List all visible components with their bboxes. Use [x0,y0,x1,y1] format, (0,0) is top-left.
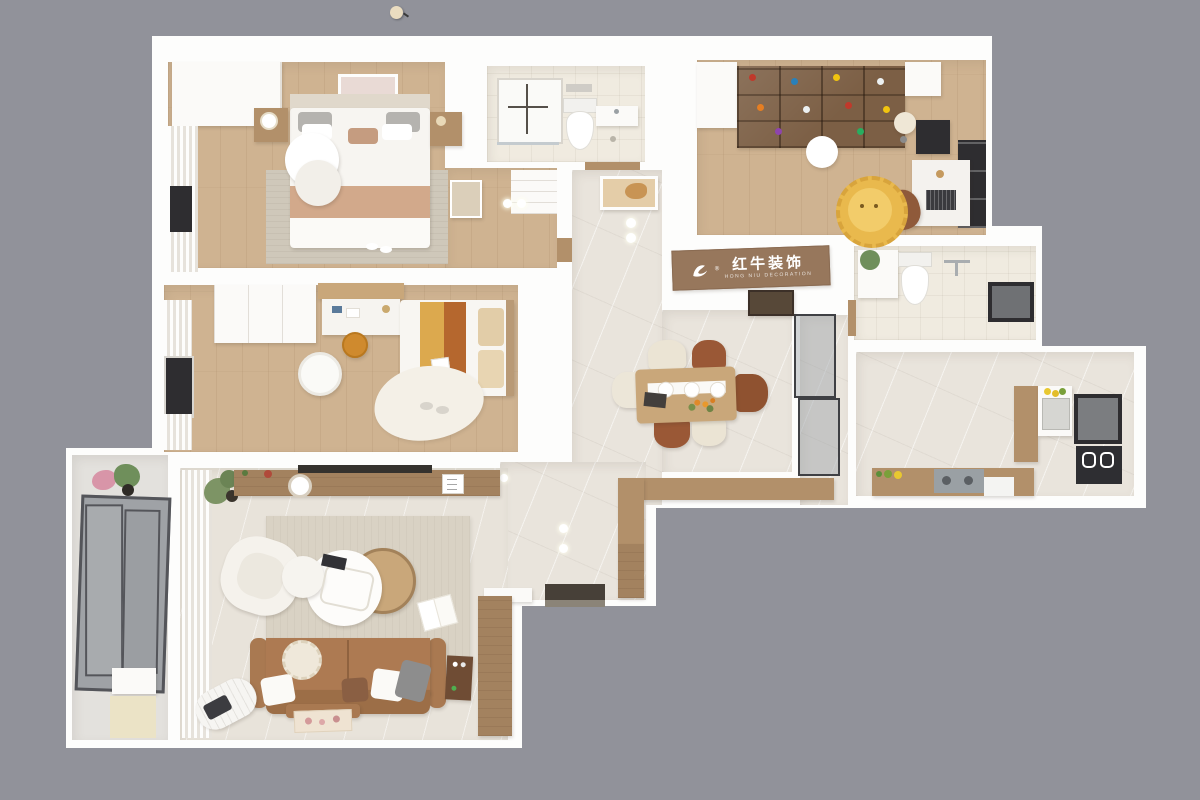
oven-handle [1082,452,1096,468]
bed-headboard [506,300,514,396]
ceiling-light [517,199,526,208]
poster-motif [333,715,340,722]
ceiling-light [626,218,636,228]
lion-eye [874,204,878,208]
shower-cross-v [526,84,528,134]
entry-door-mat [545,584,605,600]
brand-name-en: HONG NIU DECORATION [725,272,813,280]
bathroom-right-threshold [848,300,856,336]
clock-decor [288,474,312,498]
ceiling-light [500,474,508,482]
slipper [420,402,433,410]
side-table-small [295,160,341,206]
desk-notebook [332,306,342,313]
poster-motif [319,719,325,725]
slipper-left [366,243,378,250]
orange-stool [342,332,368,358]
toy [857,128,864,135]
toy [877,78,884,85]
sofa-arm-right [428,638,446,708]
bathroom-top-threshold [585,162,640,170]
armchair-rust-right [734,374,768,412]
tv-niche [170,186,192,232]
slipper-right [380,246,392,253]
toy [775,128,782,135]
nightstand-right [430,112,462,146]
cabinet-left [697,62,737,128]
flower [710,398,715,403]
bedroom2-desk [322,299,400,335]
toy [749,74,756,81]
lion-eye [860,204,864,208]
rolled-mat-panel [202,694,232,720]
bedroom2-curtain-top [164,300,192,356]
toy [883,106,890,113]
poster-motif [305,717,312,724]
red-decor [264,470,272,478]
floor-drain [610,136,616,142]
foot-fold [290,218,430,248]
lemon [1052,390,1059,397]
fruit [876,471,882,477]
brand-sign: ® 红牛装饰 HONG NIU DECORATION [671,245,830,290]
balcony-appliance [112,668,156,694]
master-door-threshold [557,238,572,262]
cream-mat [110,696,156,738]
entry-door [545,600,605,607]
white-pillow [260,673,296,706]
monitor [916,120,950,154]
kitchen-sink [1042,398,1070,430]
dining-table [635,366,737,423]
closet-shelves [511,170,557,214]
pendant-light-top [390,6,403,19]
burner [942,476,951,485]
floor-lamp [894,112,916,134]
floor-poster [294,709,353,733]
burner [964,476,973,485]
brown-pillow [341,677,369,703]
shower-arm-drop [955,260,958,276]
oven-stack [1076,446,1122,484]
glass-partition-lower [798,398,840,476]
ceiling-light [626,233,636,243]
floor-lamp-base [900,136,907,143]
shower-cross-h [508,106,548,108]
bedroom2-wardrobe [214,285,316,343]
shower-tray [497,78,563,144]
wall-accessories [566,84,592,92]
bedroom2-window [164,356,194,418]
desk-shelf [318,283,404,299]
oven-handle [1100,452,1114,468]
white-table-small [282,556,324,598]
vanity-plant [860,250,880,270]
floor-plan-scene: ® 红牛装饰 HONG NIU DECORATION [0,0,1200,800]
table-book [643,392,666,408]
laptop [926,190,956,210]
lion-rug [836,176,908,248]
plate [710,382,727,399]
toy [803,106,810,113]
desk-paper [346,308,360,318]
lion-face [848,188,892,232]
fruit [894,471,902,479]
cabinet-right [905,62,941,96]
glazing-pane [122,509,161,674]
hall-art [600,176,658,210]
desk-lamp [382,305,390,313]
ceiling-light [559,544,568,553]
flower-leaves [688,404,695,411]
mug [936,170,944,178]
radio [445,655,473,700]
wall-tv [298,465,432,473]
fruit [884,470,892,478]
plate [684,382,701,399]
slipper [436,406,449,414]
sideboard-horizontal [642,478,834,500]
pantry-cabinet [1014,386,1038,462]
glass-partition-upper [794,314,836,398]
window-pane [1078,398,1118,440]
sideboard-vertical [618,478,644,544]
toy [845,102,852,109]
hallway-floor [572,170,662,505]
pendant-light-arm [403,12,409,17]
round-pendant-lamp [806,136,838,168]
bull-logo-icon [690,260,711,279]
radio-knob [461,662,466,667]
kitchen-window [1074,394,1122,444]
leaning-mirror [450,180,482,218]
plant-pot [122,484,134,496]
chair-cream-bottom [692,418,726,446]
chair-cream-top [647,339,687,371]
window-pane [992,286,1030,318]
bed-pillow-tan [478,308,504,346]
lamp-left [260,112,278,130]
letter-card-decor [442,474,464,494]
toy [757,104,764,111]
dishwasher [984,477,1014,496]
cooktop [934,469,984,493]
toy [791,78,798,85]
brand-name-cn: 红牛装饰 [732,255,804,273]
hall-art-motif [625,183,647,199]
bed-pillow-tan [478,350,504,388]
pillow-accent [348,128,378,144]
pillow-white-right [382,124,412,140]
tall-entry-cabinet [618,544,644,598]
radio-led [451,686,456,691]
bathroom-window [988,282,1034,322]
balcony-glazing [75,494,172,693]
chair-brown-top [692,340,726,370]
ceiling-light [503,199,512,208]
lemon [1044,388,1051,395]
bedroom2-curtain-bottom [164,414,192,450]
green-decor [242,470,248,476]
toy [833,74,840,81]
shower-glass [497,142,559,145]
round-pouf [298,352,342,396]
registered-mark: ® [715,266,720,272]
radio-knob [453,662,458,667]
lime [1059,388,1066,395]
faucet [614,109,619,114]
glazing-pane [85,504,123,676]
shoe-cabinet [478,596,512,736]
ceiling-light [559,524,568,533]
lamp-right [436,116,446,126]
flower-leaves [706,405,713,412]
display-cabinet-below-sign [748,290,794,316]
